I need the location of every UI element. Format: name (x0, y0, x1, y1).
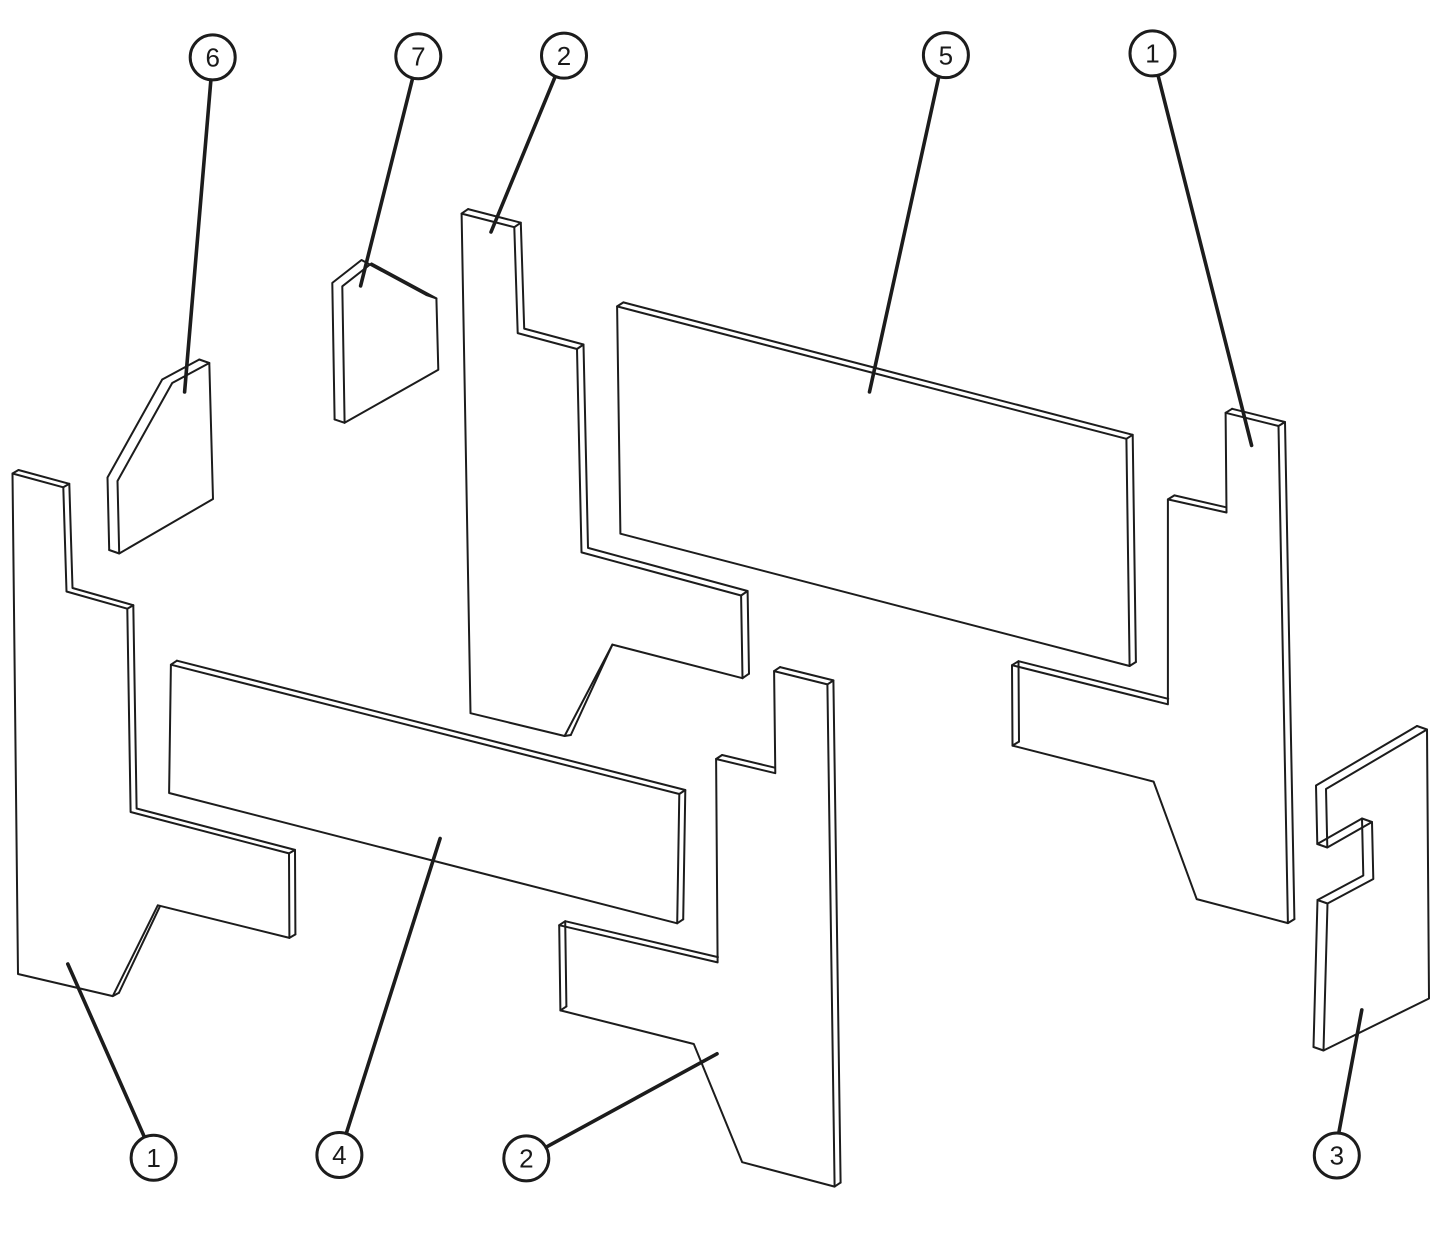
svg-text:6: 6 (205, 43, 219, 73)
svg-text:3: 3 (1330, 1141, 1344, 1171)
svg-text:7: 7 (411, 42, 425, 72)
svg-text:1: 1 (1145, 39, 1159, 69)
svg-text:5: 5 (939, 40, 953, 70)
svg-text:2: 2 (519, 1144, 533, 1174)
svg-text:4: 4 (332, 1140, 346, 1170)
svg-text:2: 2 (557, 41, 571, 71)
svg-text:1: 1 (146, 1143, 160, 1173)
